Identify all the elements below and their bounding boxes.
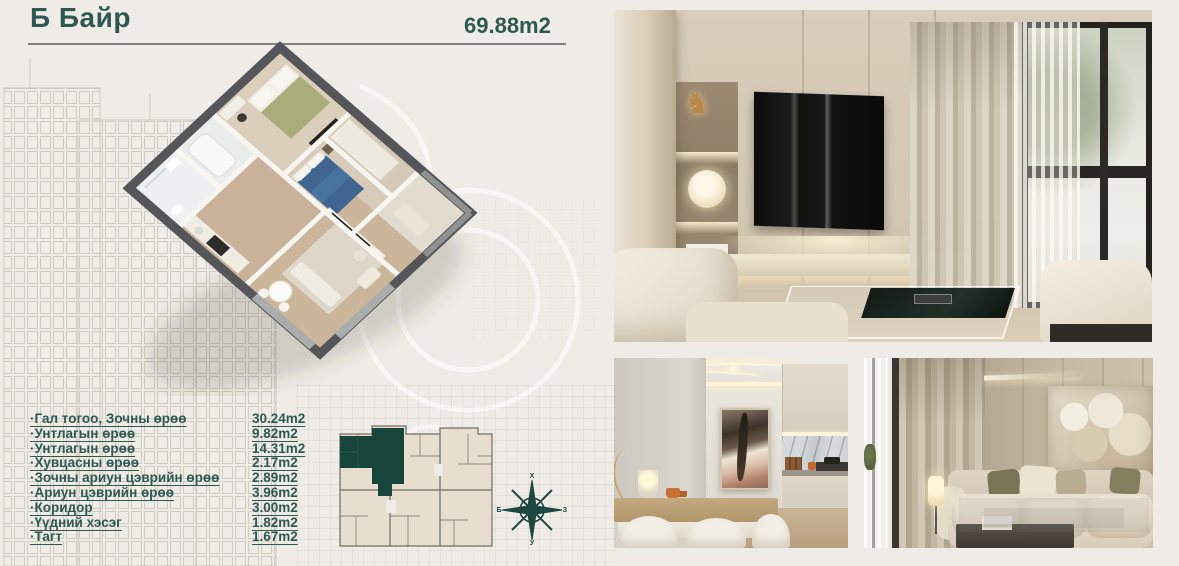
compass-north-point [528, 480, 536, 510]
window-frame [892, 358, 899, 548]
curtain [910, 22, 1022, 306]
compass-north-label: Х [530, 473, 535, 480]
room-area: 14.31m2 [252, 442, 305, 457]
room-label: ·Гал тогоо, Зочны өрөө [30, 411, 187, 426]
upper-cabinets [782, 364, 848, 434]
room-area: 2.17m2 [252, 456, 298, 471]
room-area: 3.00m2 [252, 501, 298, 516]
floor-plan-3d [90, 36, 520, 396]
olive-pillow [1109, 467, 1141, 496]
room-label: ·Үүдний хэсэг [30, 515, 122, 530]
compass-south-label: У [530, 540, 535, 546]
compass-east-label: З [563, 507, 568, 514]
room-row: ·Үүдний хэсэг1.82m2 [30, 516, 342, 531]
room-row: ·Унтлагын өрөө14.31m2 [30, 442, 342, 457]
compass-west-label: Б [496, 507, 501, 514]
orange-pot [808, 462, 816, 470]
room-area: 1.67m2 [252, 530, 298, 545]
sofa-left-seat [686, 302, 848, 342]
cove-light [706, 382, 784, 386]
courtyard-gap [386, 500, 396, 513]
abstract-painting [720, 408, 770, 490]
floor-lamp-stand [935, 506, 937, 534]
room-row: ·Зочны ариун цэврийн өрөө2.89m2 [30, 471, 342, 486]
compass-west-point [502, 506, 532, 514]
orange-cups [666, 488, 680, 498]
room-label: ·Ариун цэврийн өрөө [30, 485, 174, 500]
room-label: ·Зочны ариун цэврийн өрөө [30, 470, 219, 485]
compass-south-point [528, 510, 536, 540]
room-area: 30.24m2 [252, 412, 305, 427]
room-area: 3.96m2 [252, 486, 298, 501]
plant [864, 444, 876, 470]
courtyard-gap [434, 464, 443, 476]
room-row: ·Ариун цэврийн өрөө3.96m2 [30, 486, 342, 501]
compass-east-point [532, 506, 562, 514]
shelf-glow [676, 222, 738, 234]
shelf-glow [676, 152, 738, 164]
room-row: ·Коридор3.00m2 [30, 501, 342, 516]
room-label: ·Унтлагын өрөө [30, 441, 135, 456]
room-label: ·Коридор [30, 500, 93, 515]
dandelion-lamp [688, 170, 726, 208]
room-label: ·Хувцасны өрөө [30, 455, 139, 470]
spotlight [730, 366, 736, 372]
room-area: 9.82m2 [252, 427, 298, 442]
room-row: ·Унтлагын өрөө9.82m2 [30, 427, 342, 442]
cream-pillow [1019, 465, 1057, 497]
compass-hub [529, 507, 535, 513]
room-label: ·Тагт [30, 529, 62, 544]
room-row: ·Гал тогоо, Зочны өрөө30.24m2 [30, 412, 342, 427]
taupe-pillow [1055, 469, 1086, 497]
frying-pan [824, 457, 840, 464]
room-area: 2.89m2 [252, 471, 298, 486]
sofa-right-base [1050, 324, 1152, 342]
room-label: ·Унтлагын өрөө [30, 426, 135, 441]
horse-sculpture-icon: ♞ [684, 86, 711, 121]
page-title: Б Байр [30, 2, 131, 34]
tv-screen [754, 92, 884, 231]
candle-glow [638, 470, 658, 498]
abstract-wall-art [1048, 386, 1153, 474]
room-area-list: ·Гал тогоо, Зочны өрөө30.24m2 ·Унтлагын … [30, 412, 342, 545]
spice-jars [785, 457, 802, 470]
photo-lounge-sofa [864, 358, 1153, 548]
floor-lamp-glow [928, 476, 944, 506]
room-area: 1.82m2 [252, 516, 298, 531]
remote-tray [914, 294, 952, 304]
room-row: ·Хувцасны өрөө2.17m2 [30, 456, 342, 471]
photo-living-room-tv-wall: ♞ [614, 10, 1152, 342]
painting-detail [736, 413, 750, 481]
apartment-brochure-slide: Б Байр 69.88m2 [0, 0, 1179, 566]
watermark-overlay [984, 508, 1124, 528]
compass-rose-icon: Х З У Б [494, 470, 570, 546]
room-row: ·Тагт1.67m2 [30, 530, 342, 545]
photo-dining-kitchen [614, 358, 848, 548]
